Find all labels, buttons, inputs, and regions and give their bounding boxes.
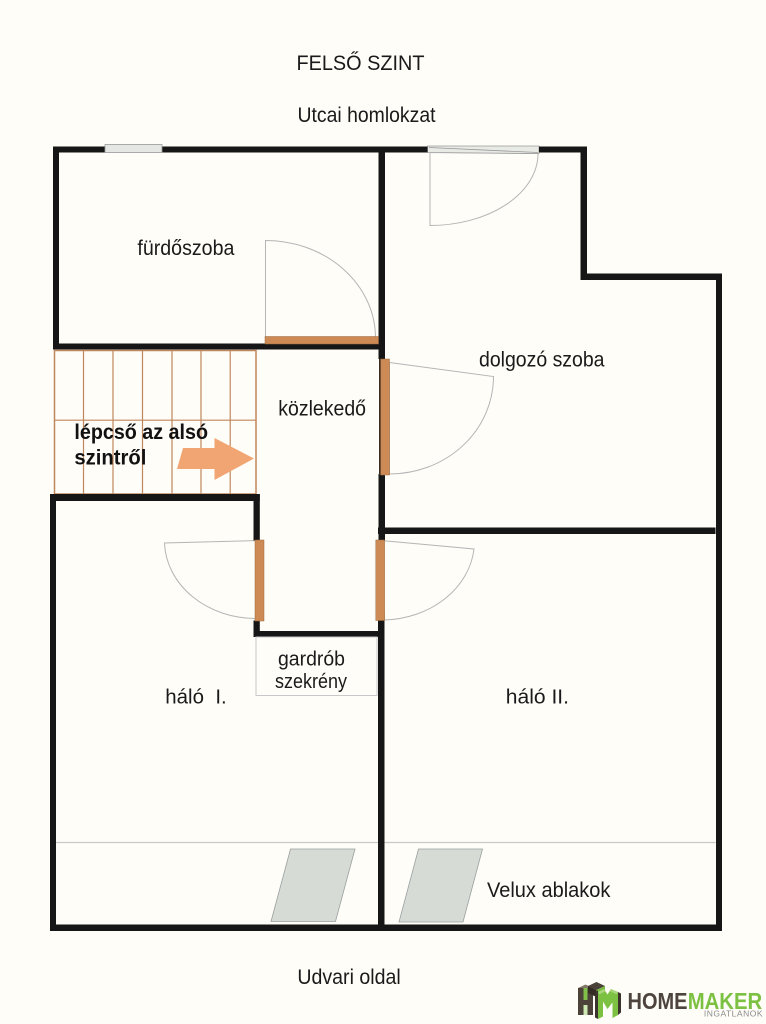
svg-text:dolgozó szoba: dolgozó szoba xyxy=(479,349,605,372)
svg-text:közlekedő: közlekedő xyxy=(278,398,366,421)
svg-text:háló II.: háló II. xyxy=(506,686,569,709)
svg-text:lépcső az alsó: lépcső az alsó xyxy=(74,421,208,444)
svg-text:fürdőszoba: fürdőszoba xyxy=(137,237,234,260)
svg-text:szekrény: szekrény xyxy=(275,670,348,693)
svg-text:Utcai homlokzat: Utcai homlokzat xyxy=(298,103,436,127)
svg-text:FELSŐ SZINT: FELSŐ SZINT xyxy=(297,52,425,75)
svg-text:Velux ablakok: Velux ablakok xyxy=(487,879,611,902)
svg-text:szintről: szintről xyxy=(74,447,146,470)
svg-text:HOME: HOME xyxy=(628,988,688,1014)
svg-text:INGATLANOK: INGATLANOK xyxy=(704,1009,763,1019)
svg-text:háló I.: háló I. xyxy=(165,686,226,709)
svg-text:gardrób: gardrób xyxy=(278,648,345,671)
svg-text:Udvari oldal: Udvari oldal xyxy=(297,965,400,989)
